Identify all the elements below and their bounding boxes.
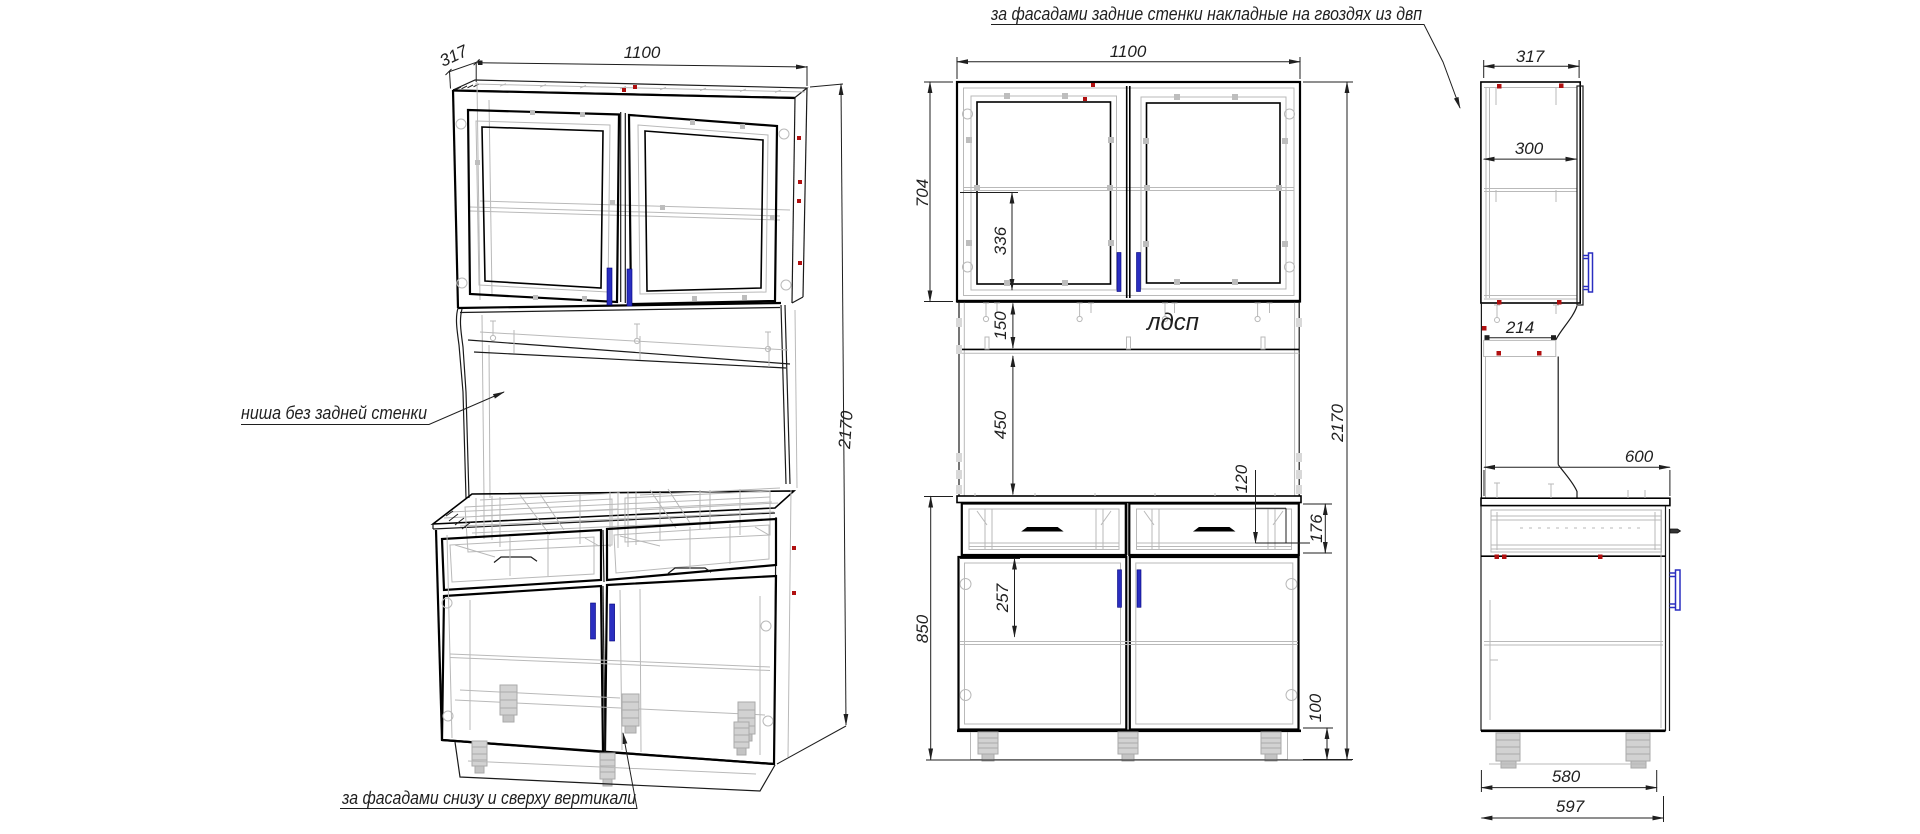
svg-text:336: 336 bbox=[991, 226, 1010, 255]
svg-text:597: 597 bbox=[1556, 797, 1585, 816]
svg-text:2170: 2170 bbox=[1328, 404, 1347, 443]
svg-text:850: 850 bbox=[913, 614, 932, 643]
svg-text:176: 176 bbox=[1307, 514, 1326, 543]
svg-text:600: 600 bbox=[1625, 447, 1654, 466]
svg-text:1100: 1100 bbox=[1110, 42, 1147, 61]
svg-text:257: 257 bbox=[993, 583, 1012, 613]
svg-text:214: 214 bbox=[1505, 318, 1534, 337]
svg-text:580: 580 bbox=[1552, 767, 1581, 786]
svg-text:за фасадами снизу и сверху вер: за фасадами снизу и сверху вертикали bbox=[341, 788, 636, 808]
svg-text:150: 150 bbox=[991, 311, 1010, 340]
svg-text:за фасадами задние стенки накл: за фасадами задние стенки накладные на г… bbox=[990, 4, 1422, 24]
svg-text:лдсп: лдсп bbox=[1145, 309, 1199, 336]
svg-text:704: 704 bbox=[913, 179, 932, 207]
svg-text:2170: 2170 bbox=[835, 410, 857, 451]
svg-text:100: 100 bbox=[1306, 693, 1325, 722]
svg-text:317: 317 bbox=[1516, 47, 1545, 66]
svg-text:450: 450 bbox=[991, 410, 1010, 439]
svg-text:ниша без задней стенки: ниша без задней стенки bbox=[241, 403, 427, 423]
svg-text:1100: 1100 bbox=[624, 43, 661, 62]
svg-text:120: 120 bbox=[1232, 464, 1251, 493]
svg-text:300: 300 bbox=[1515, 139, 1544, 158]
